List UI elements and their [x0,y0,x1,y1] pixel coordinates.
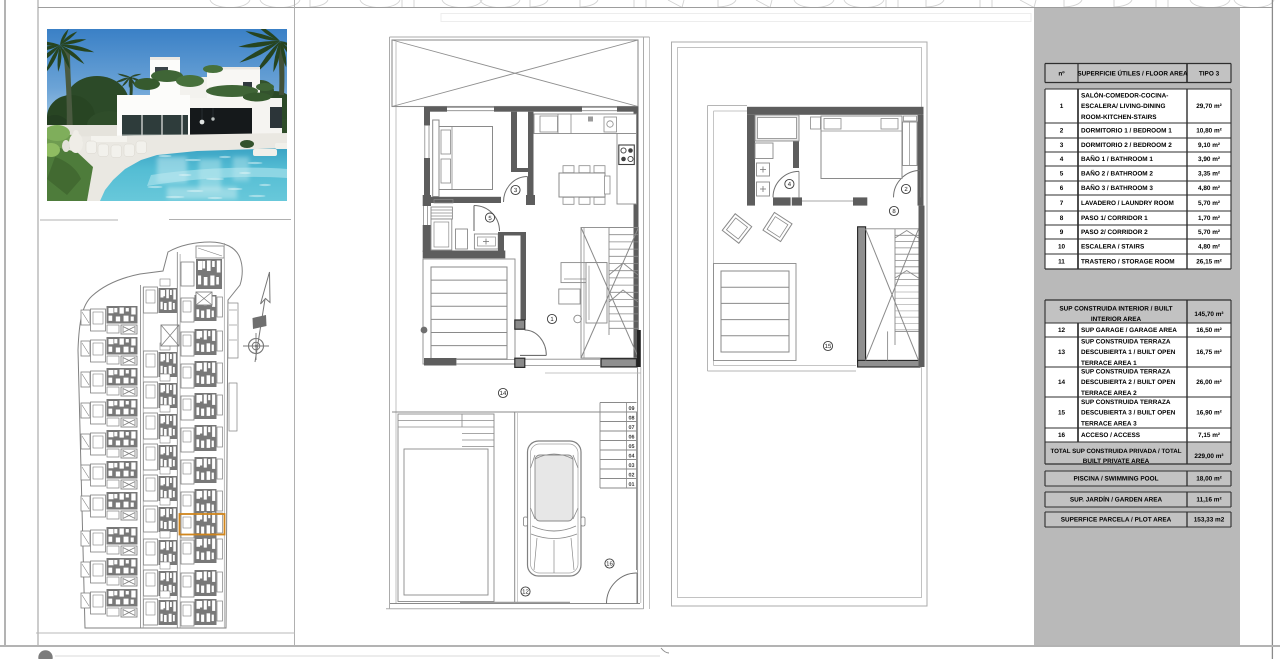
svg-text:29,70 m²: 29,70 m² [1196,103,1222,110]
svg-text:TERRACE AREA 2: TERRACE AREA 2 [1081,390,1137,397]
svg-text:3,35 m²: 3,35 m² [1198,171,1220,178]
svg-text:SUPERFICIE ÚTILES / FLOOR AREA: SUPERFICIE ÚTILES / FLOOR AREA [1077,70,1188,78]
svg-text:01: 01 [629,482,635,488]
svg-text:ACCESO / ACCESS: ACCESO / ACCESS [1081,432,1141,439]
svg-text:12: 12 [522,589,529,596]
svg-text:7: 7 [1060,200,1064,207]
svg-text:26,15 m²: 26,15 m² [1196,259,1222,266]
svg-text:5: 5 [1060,171,1064,178]
svg-text:8: 8 [1060,215,1064,222]
svg-text:SUPERFICE PARCELA / PLOT AREA: SUPERFICE PARCELA / PLOT AREA [1061,517,1172,524]
svg-text:10: 10 [1058,244,1066,251]
svg-text:05: 05 [629,444,635,450]
svg-text:11,16 m²: 11,16 m² [1196,497,1221,504]
svg-text:4: 4 [1060,156,1064,163]
svg-text:5,70 m²: 5,70 m² [1198,229,1220,236]
svg-text:09: 09 [629,406,635,412]
svg-text:14: 14 [1058,379,1066,386]
svg-text:06: 06 [629,435,635,441]
svg-text:nº: nº [1058,71,1065,78]
svg-text:15: 15 [825,343,832,350]
svg-text:9: 9 [1060,229,1064,236]
svg-text:PISCINA / SWIMMING POOL: PISCINA / SWIMMING POOL [1074,476,1159,483]
svg-text:ESCALERA/ LIVING-DINING: ESCALERA/ LIVING-DINING [1081,103,1166,110]
svg-text:ESCALERA / STAIRS: ESCALERA / STAIRS [1081,244,1145,251]
svg-text:4,80 m²: 4,80 m² [1198,244,1220,251]
svg-text:12: 12 [1058,327,1066,334]
svg-text:16: 16 [1058,432,1066,439]
svg-text:TRASTERO / STORAGE ROOM: TRASTERO / STORAGE ROOM [1081,259,1175,266]
svg-text:14: 14 [500,390,507,397]
svg-text:DESCUBIERTA 3 / BUILT OPEN: DESCUBIERTA 3 / BUILT OPEN [1081,410,1176,417]
svg-text:DESCUBIERTA 2 / BUILT OPEN: DESCUBIERTA 2 / BUILT OPEN [1081,379,1176,386]
svg-text:08: 08 [629,416,635,422]
svg-text:16,90 m²: 16,90 m² [1196,410,1222,417]
svg-text:15: 15 [1058,410,1066,417]
svg-text:BAÑO 1 / BATHROOM 1: BAÑO 1 / BATHROOM 1 [1081,155,1153,163]
svg-text:7,15 m²: 7,15 m² [1198,432,1220,439]
svg-text:1,70 m²: 1,70 m² [1198,215,1220,222]
svg-text:LAVADERO / LAUNDRY ROOM: LAVADERO / LAUNDRY ROOM [1081,200,1174,207]
svg-text:DORMITORIO 1 / BEDROOM 1: DORMITORIO 1 / BEDROOM 1 [1081,128,1172,135]
svg-text:DORMITORIO 2 / BEDROOM 2: DORMITORIO 2 / BEDROOM 2 [1081,142,1172,149]
svg-text:02: 02 [629,473,635,479]
svg-text:4,80 m²: 4,80 m² [1198,185,1220,192]
svg-text:16: 16 [606,561,613,568]
svg-text:BAÑO 3 / BATHROOM 3: BAÑO 3 / BATHROOM 3 [1081,184,1153,192]
svg-text:INTERIOR AREA: INTERIOR AREA [1091,316,1142,323]
svg-text:SUP CONSTRUIDA INTERIOR / BUIL: SUP CONSTRUIDA INTERIOR / BUILT [1059,306,1172,313]
svg-text:TERRACE AREA 3: TERRACE AREA 3 [1081,421,1137,428]
svg-text:6: 6 [1060,185,1064,192]
svg-text:2: 2 [1060,128,1064,135]
svg-text:9,10 m²: 9,10 m² [1198,142,1220,149]
svg-text:04: 04 [629,454,635,460]
svg-text:BAÑO 2 / BATHROOM 2: BAÑO 2 / BATHROOM 2 [1081,170,1153,178]
svg-text:145,70 m²: 145,70 m² [1194,311,1223,318]
svg-text:DESCUBIERTA 1 / BUILT OPEN: DESCUBIERTA 1 / BUILT OPEN [1081,349,1176,356]
svg-text:PASO 1/ CORRIDOR 1: PASO 1/ CORRIDOR 1 [1081,215,1148,222]
svg-text:16,75 m²: 16,75 m² [1196,349,1222,356]
svg-text:229,00 m²: 229,00 m² [1194,453,1223,460]
svg-text:SUP CONSTRUIDA TERRAZA: SUP CONSTRUIDA TERRAZA [1081,368,1171,375]
svg-text:16,50 m²: 16,50 m² [1196,327,1222,334]
svg-text:07: 07 [629,425,635,431]
svg-text:5,70 m²: 5,70 m² [1198,200,1220,207]
svg-text:13: 13 [1058,349,1066,356]
svg-text:153,33 m2: 153,33 m2 [1194,517,1225,524]
svg-text:TERRACE AREA 1: TERRACE AREA 1 [1081,360,1137,367]
svg-text:TOTAL SUP CONSTRUIDA PRIVADA /: TOTAL SUP CONSTRUIDA PRIVADA / TOTAL [1050,448,1181,455]
svg-text:PASO 2/ CORRIDOR 2: PASO 2/ CORRIDOR 2 [1081,229,1148,236]
svg-text:SUP CONSTRUIDA TERRAZA: SUP CONSTRUIDA TERRAZA [1081,338,1171,345]
svg-text:11: 11 [1058,259,1065,266]
svg-text:3: 3 [1060,142,1064,149]
svg-text:TIPO 3: TIPO 3 [1199,71,1220,78]
svg-text:03: 03 [629,463,635,469]
svg-text:SUP GARAGE / GARAGE AREA: SUP GARAGE / GARAGE AREA [1081,327,1177,334]
svg-text:1: 1 [1060,103,1064,110]
svg-text:SUP. JARDÍN / GARDEN AREA: SUP. JARDÍN / GARDEN AREA [1070,496,1163,504]
svg-text:26,00 m²: 26,00 m² [1196,379,1222,386]
svg-text:SALÓN-COMEDOR-COCINA-: SALÓN-COMEDOR-COCINA- [1081,91,1168,99]
svg-text:SUP CONSTRUIDA TERRAZA: SUP CONSTRUIDA TERRAZA [1081,399,1171,406]
svg-text:ROOM-KITCHEN-STAIRS: ROOM-KITCHEN-STAIRS [1081,114,1157,121]
svg-text:3,90 m²: 3,90 m² [1198,156,1220,163]
svg-text:18,00 m²: 18,00 m² [1196,476,1222,483]
svg-text:10,80 m²: 10,80 m² [1196,128,1222,135]
